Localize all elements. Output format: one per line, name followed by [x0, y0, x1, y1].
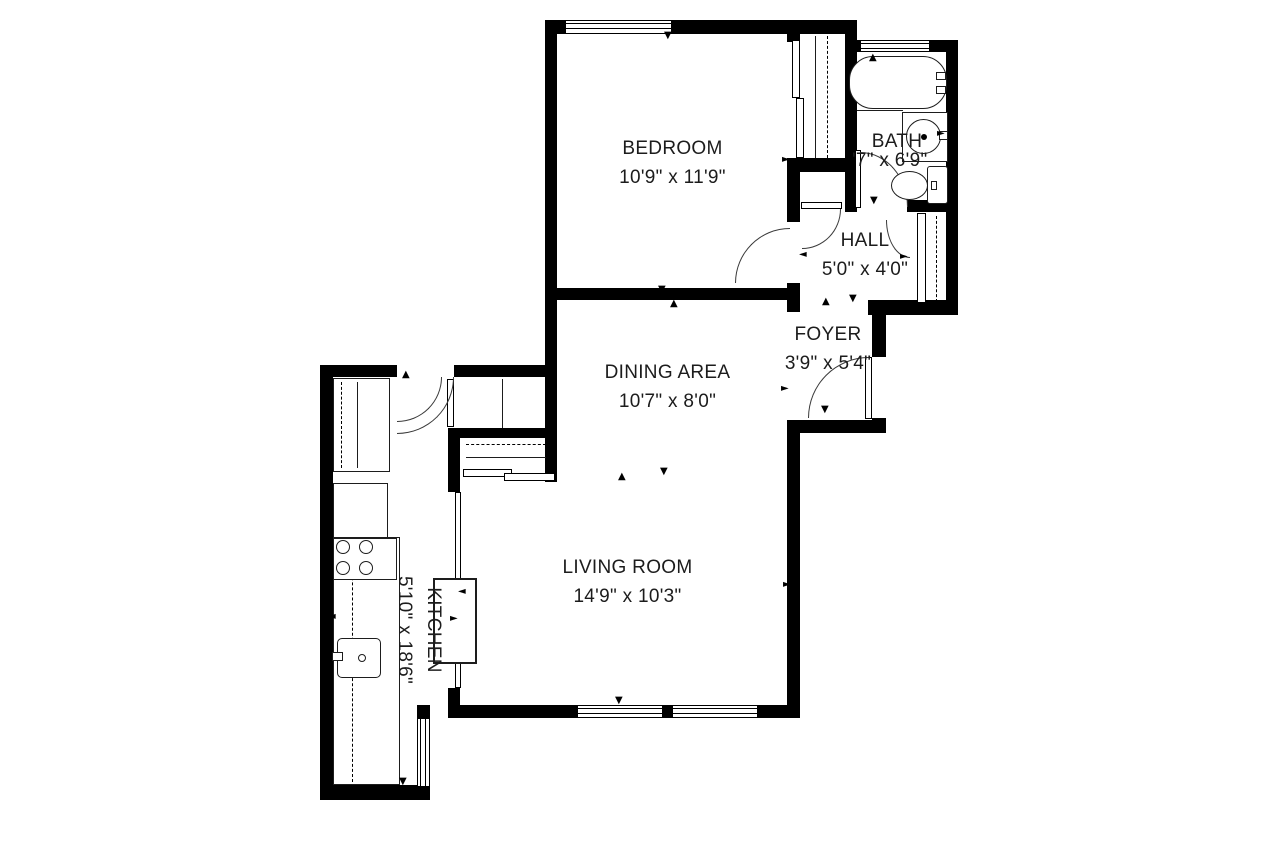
marker-icon: ◄: [328, 612, 336, 622]
closet-sliding-door: [796, 98, 804, 158]
marker-icon: ▲: [670, 299, 678, 309]
marker-icon: ▼: [821, 405, 829, 415]
burner-icon: [336, 561, 350, 575]
bathtub-faucet-icon: [936, 72, 946, 80]
bedroom-door-arc: [735, 228, 790, 283]
room-dims: 10'9" x 11'9": [560, 163, 785, 192]
room-dims: 5'0" x 4'0": [810, 255, 920, 284]
marker-icon: ▼: [870, 196, 878, 206]
marker-icon: ◄: [799, 250, 807, 260]
marker-icon: ◄: [547, 156, 555, 166]
room-dims: 3'9" x 5'4": [778, 349, 878, 378]
wall: [454, 365, 557, 377]
closet-divider-line: [502, 379, 503, 428]
bathtub-icon: [849, 56, 947, 109]
marker-icon: ▲: [618, 472, 626, 482]
bathtub-faucet-icon: [936, 86, 946, 94]
wall: [320, 785, 430, 800]
floor-plan: ▼ ◄ ▼ ▲ ► ◄ ► ▲ ▼ ▲ ▼ ◄ ► ► ▼ ► ▼ ▲ ▼ ▲ …: [0, 0, 1280, 853]
window: [577, 705, 663, 718]
burner-icon: [359, 561, 373, 575]
marker-icon: ▲: [402, 370, 410, 380]
marker-icon: ▼: [660, 467, 668, 477]
marker-icon: ▲: [822, 297, 830, 307]
wall: [787, 420, 800, 715]
pantry-shelf-line: [357, 382, 358, 468]
marker-icon: ▼: [399, 777, 407, 787]
wall: [663, 705, 672, 718]
marker-icon: ▲: [869, 53, 877, 63]
closet-shelf-line: [815, 36, 816, 158]
marker-icon: ►: [783, 580, 791, 590]
closet-sliding-door: [792, 40, 800, 98]
wall: [670, 20, 857, 34]
wall: [448, 428, 557, 438]
room-name: BEDROOM: [560, 134, 785, 163]
closet-shelf-line: [466, 457, 546, 458]
wall: [787, 20, 800, 42]
room-label-foyer: FOYER 3'9" x 5'4": [778, 320, 878, 378]
wall: [868, 300, 958, 315]
room-label-hall: HALL 5'0" x 4'0": [810, 226, 920, 284]
marker-icon: ▼: [615, 696, 623, 706]
room-label-dining: DINING AREA 10'7" x 8'0": [555, 358, 780, 416]
closet-sliding-door: [504, 473, 555, 481]
wall: [448, 688, 460, 706]
toilet-bowl-icon: [891, 171, 928, 200]
room-name: KITCHEN: [419, 565, 448, 695]
closet-rod-line: [827, 36, 828, 158]
marker-icon: ◄: [458, 587, 466, 597]
sink-faucet-icon: [332, 652, 343, 661]
sink-drain-icon: [358, 654, 366, 662]
room-dims: '7" x 6'9": [852, 146, 928, 175]
room-dims: 10'7" x 8'0": [555, 387, 780, 416]
marker-icon: ►: [450, 614, 458, 624]
wall: [417, 787, 430, 800]
window: [860, 40, 930, 52]
closet-rod-line: [466, 444, 546, 445]
room-dims: 5'10" x 18'6": [390, 565, 419, 695]
room-dims: 14'9" x 10'3": [515, 582, 740, 611]
room-label-living: LIVING ROOM 14'9" x 10'3": [515, 553, 740, 611]
room-name: LIVING ROOM: [515, 553, 740, 582]
room-name: HALL: [810, 226, 920, 255]
wall: [448, 438, 460, 492]
pantry-rod-line: [341, 382, 342, 468]
wall: [448, 705, 577, 718]
room-name: FOYER: [778, 320, 878, 349]
marker-icon: ►: [781, 384, 789, 394]
room-dims-bath: '7" x 6'9": [852, 146, 928, 175]
burner-icon: [359, 540, 373, 554]
wall: [417, 705, 430, 718]
window: [565, 20, 672, 34]
marker-icon: ▼: [658, 285, 666, 295]
marker-icon: ◄: [845, 120, 853, 130]
toilet-button-icon: [931, 181, 937, 190]
tub-deck-line: [857, 110, 903, 111]
wall: [790, 420, 886, 433]
refrigerator-icon: [333, 483, 388, 538]
wall: [787, 283, 800, 312]
room-label-bedroom: BEDROOM 10'9" x 11'9": [560, 134, 785, 192]
marker-icon: ▼: [664, 31, 672, 41]
burner-icon: [336, 540, 350, 554]
marker-icon: ►: [937, 129, 945, 139]
closet-rod-line: [936, 216, 937, 302]
linen-closet-door: [801, 202, 842, 209]
wall: [758, 705, 800, 718]
room-label-kitchen: KITCHEN 5'10" x 18'6": [390, 565, 448, 695]
marker-icon: ▼: [849, 294, 857, 304]
window: [417, 718, 430, 787]
window: [672, 705, 758, 718]
wall: [320, 365, 333, 800]
wall: [787, 158, 845, 172]
room-name: DINING AREA: [555, 358, 780, 387]
